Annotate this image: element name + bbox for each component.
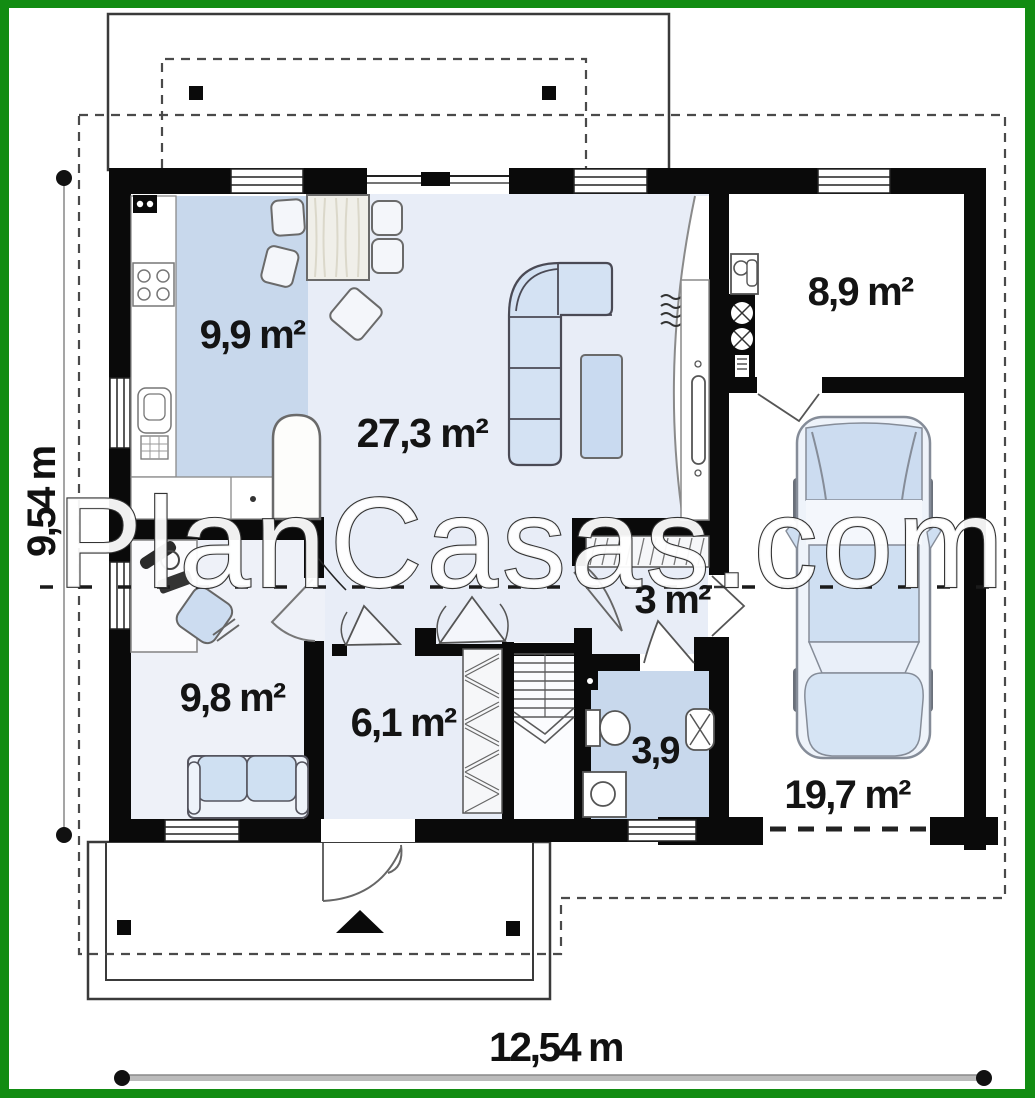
svg-text:9,9 m²: 9,9 m² bbox=[200, 313, 306, 357]
svg-text:8,9 m²: 8,9 m² bbox=[808, 270, 914, 314]
svg-text:19,7 m²: 19,7 m² bbox=[784, 773, 911, 817]
svg-text:PlanCasas.com: PlanCasas.com bbox=[57, 472, 1008, 615]
svg-text:6,1 m²: 6,1 m² bbox=[351, 701, 457, 745]
svg-text:12,54 m: 12,54 m bbox=[489, 1024, 622, 1070]
svg-text:27,3 m²: 27,3 m² bbox=[357, 410, 489, 456]
svg-text:3,9: 3,9 bbox=[631, 730, 679, 772]
svg-text:9,8 m²: 9,8 m² bbox=[180, 676, 286, 720]
